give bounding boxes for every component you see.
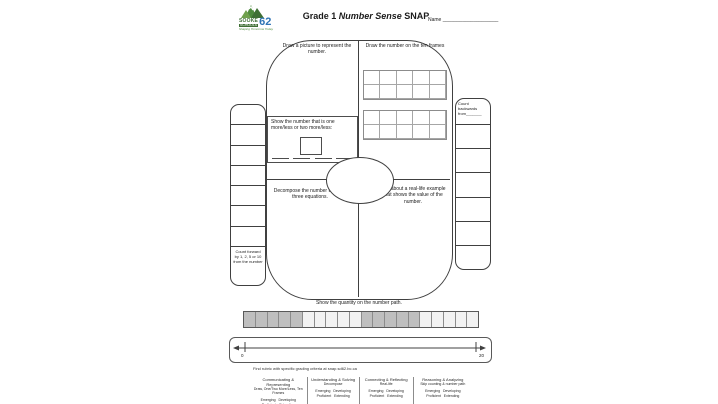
count-forward-label: Count forward by 1, 2, 5 or 10 from the … [231, 247, 265, 285]
ten-frame-cell [364, 125, 380, 139]
rubric-skills: Draw, One/Two More/Less, Ten Frames [253, 387, 304, 396]
rubric-levels: Emerging DevelopingProficient Extending [253, 398, 304, 404]
more-less-blanks [272, 155, 353, 159]
more-less-label: Show the number that is one more/less or… [268, 117, 357, 132]
number-path-cell-shaded [373, 312, 385, 327]
number-path-cell [467, 312, 478, 327]
count-cell [231, 166, 265, 186]
ten-frame-1 [363, 70, 447, 100]
count-cell [456, 197, 490, 221]
rubric-levels-row1: Emerging Developing [425, 389, 460, 393]
number-path-cell [315, 312, 327, 327]
ten-frame-cell [364, 85, 380, 99]
rubric-skills: Decompose [311, 382, 356, 386]
number-line-icon [233, 341, 486, 353]
ten-frame-cell [380, 71, 396, 85]
ten-frame-cell [430, 85, 446, 99]
number-path-cell [456, 312, 468, 327]
title-suffix: SNAP [402, 11, 430, 21]
rubric-col-reasoning: Reasoning & Analyzing Skip counting & nu… [413, 377, 472, 404]
ten-frame-cell [397, 125, 413, 139]
number-path-cell [444, 312, 456, 327]
ten-frame-2 [363, 110, 447, 140]
rubric-levels-row2: Proficient Extending [317, 394, 350, 398]
ten-frame-cell [364, 71, 380, 85]
blank-line [293, 155, 310, 159]
title-prefix: Grade 1 [303, 11, 339, 21]
number-path-cell-shaded [256, 312, 268, 327]
count-cell [456, 124, 490, 148]
rubric-levels: Emerging DevelopingProficient Extending [311, 389, 356, 398]
rubric-levels-row2: Proficient Extending [370, 394, 403, 398]
ten-frame-cell [397, 85, 413, 99]
ten-frame-cell [430, 71, 446, 85]
rubric-col-connecting: Connecting & Reflecting Real-life Emergi… [359, 377, 413, 404]
rubric-skills: Skip counting & number path [417, 382, 469, 386]
count-backwards-label: Count backwards from_______ [456, 99, 490, 124]
logo-62-text: 62 [259, 18, 271, 27]
ten-frame-cell [430, 125, 446, 139]
count-cell [231, 125, 265, 145]
ten-frame-cell [413, 85, 429, 99]
rubric-skills: Real-life [363, 382, 410, 386]
center-number-oval [326, 157, 394, 204]
count-cell [231, 105, 265, 125]
count-cell [231, 227, 265, 247]
count-backwards-cells [456, 124, 490, 269]
number-path-cell-shaded [385, 312, 397, 327]
number-path-cell [326, 312, 338, 327]
number-line-box: 0 20 [229, 337, 492, 363]
rubric-levels: Emerging DevelopingProficient Extending [417, 389, 469, 398]
number-path-cell-shaded [279, 312, 291, 327]
rubric-levels-row1: Emerging Developing [368, 389, 403, 393]
worksheet-page: SOOKE SCHOOLS 62 Shaping Tomorrow Today … [0, 0, 718, 404]
count-backwards-panel: Count backwards from_______ [455, 98, 491, 270]
ten-frame-cell [364, 111, 380, 125]
ten-frames-label: Draw the number on the ten frames [361, 43, 449, 49]
ten-frame-cell [380, 111, 396, 125]
draw-picture-label: Draw a picture to represent the number. [278, 43, 356, 56]
count-cell [231, 206, 265, 226]
rubric-levels-row1: Emerging Developing [261, 398, 296, 402]
count-cell [456, 148, 490, 172]
rubric-levels-row2: Proficient Extending [426, 394, 459, 398]
number-path-cell [432, 312, 444, 327]
blank-line [315, 155, 332, 159]
ten-frame-cell [397, 71, 413, 85]
more-less-box: Show the number that is one more/less or… [267, 116, 358, 163]
rubric-title: Communicating & Representing [253, 377, 304, 387]
count-cell [456, 245, 490, 269]
count-cell [456, 172, 490, 196]
ten-frame-cell [380, 125, 396, 139]
number-path-cell [338, 312, 350, 327]
name-field: Name ____________________ [428, 17, 498, 23]
rubric-table: Communicating & Representing Draw, One/T… [250, 377, 472, 404]
number-path-cell-shaded [268, 312, 280, 327]
rubric-note: Find rubric with specific grading criter… [253, 366, 357, 371]
ten-frame-cell [413, 125, 429, 139]
number-path-cell [420, 312, 432, 327]
number-path-cell-shaded [291, 312, 303, 327]
number-path-cell [350, 312, 362, 327]
number-path-cell-shaded [244, 312, 256, 327]
ten-frame-cell [380, 85, 396, 99]
number-path-cell-shaded [362, 312, 374, 327]
count-cell [231, 146, 265, 166]
rubric-levels: Emerging DevelopingProficient Extending [363, 389, 410, 398]
count-forward-panel: Count forward by 1, 2, 5 or 10 from the … [230, 104, 266, 286]
ten-frame-cell [430, 111, 446, 125]
count-forward-cells [231, 105, 265, 247]
ten-frame-cell [413, 111, 429, 125]
blank-line [272, 155, 289, 159]
rubric-col-communicating: Communicating & Representing Draw, One/T… [250, 377, 307, 404]
number-path-caption: Show the quantity on the number path. [299, 300, 419, 306]
ten-frame-cell [413, 71, 429, 85]
page-title: Grade 1 Number Sense SNAP [296, 11, 436, 21]
ten-frame-cell [397, 111, 413, 125]
count-cell [456, 221, 490, 245]
rubric-levels-row1: Emerging Developing [315, 389, 350, 393]
number-line-max: 20 [479, 353, 484, 358]
title-italic: Number Sense [339, 11, 402, 21]
more-less-number-square [300, 137, 322, 155]
number-path-strip [243, 311, 479, 328]
logo-tagline: Shaping Tomorrow Today [239, 28, 281, 31]
number-path-cell-shaded [409, 312, 421, 327]
number-path-cell-shaded [397, 312, 409, 327]
school-logo: SOOKE SCHOOLS 62 Shaping Tomorrow Today [239, 3, 281, 39]
rubric-col-understanding: Understanding & Solving Decompose Emergi… [307, 377, 359, 404]
count-cell [231, 186, 265, 206]
number-line-min: 0 [241, 353, 244, 358]
number-path-cell [303, 312, 315, 327]
